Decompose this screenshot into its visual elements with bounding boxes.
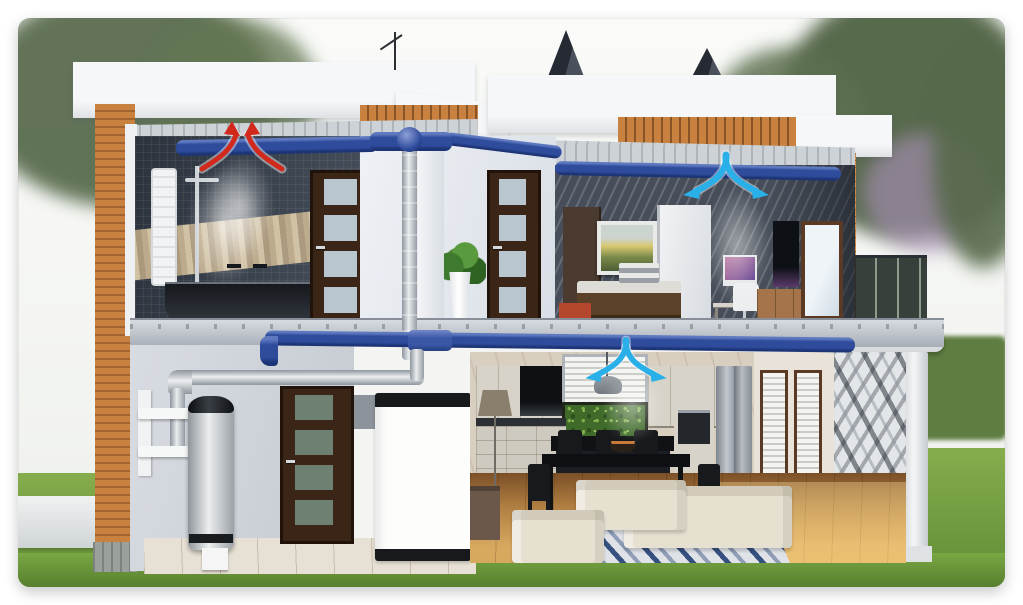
folded-towels — [619, 263, 659, 283]
wall-oven — [678, 410, 710, 444]
junction-drop-duct — [410, 349, 424, 381]
fresh-air-duct-down — [170, 388, 185, 450]
slab-rivets — [130, 324, 944, 329]
floor-lamp-pole — [494, 416, 496, 496]
door-handle-icon — [493, 246, 502, 249]
extract-air-arrows-icon — [186, 119, 298, 175]
bath-tap-2 — [253, 264, 267, 268]
kitchen-living-area — [470, 352, 906, 563]
door-glass-panes — [499, 179, 526, 323]
supply-air-arrows-kitchen-icon — [574, 334, 678, 394]
door-handle-icon — [316, 246, 325, 249]
tank-bottom-ring — [189, 534, 233, 543]
terrace-window-1 — [760, 370, 788, 490]
door-glass-panes — [324, 179, 358, 323]
fruit-bowl — [610, 444, 636, 452]
ventilation-unit — [375, 393, 471, 561]
range-hood — [520, 366, 566, 416]
cutaway-house-illustration — [18, 18, 1005, 587]
fresh-air-duct-horizontal — [176, 370, 424, 385]
riser-duct — [402, 138, 417, 360]
wall-bracket-plate — [138, 390, 151, 476]
entry-door — [280, 386, 354, 544]
garden-wall — [18, 496, 100, 548]
hall-pillar — [418, 136, 444, 334]
utility-vent-slot — [354, 395, 376, 429]
counter-left-top — [476, 418, 566, 426]
bath-tap-1 — [227, 264, 241, 268]
bed-frame — [577, 293, 681, 320]
refrigerator — [716, 366, 752, 488]
hall-door — [487, 170, 541, 332]
bedroom-window — [801, 221, 843, 320]
door-glass-panes — [295, 395, 333, 535]
unit-top-band — [375, 393, 471, 407]
terrace-window-2 — [794, 370, 822, 490]
side-table — [470, 486, 500, 540]
tank-base-block — [202, 548, 228, 570]
slab-duct-junction — [408, 330, 452, 351]
tank-top-cap — [188, 396, 234, 413]
antenna-arm — [380, 34, 403, 50]
unit-bottom-band — [375, 549, 471, 561]
tv-panel — [773, 221, 799, 287]
dining-table — [542, 454, 690, 467]
heat-pump-water-heater — [188, 396, 234, 550]
door-handle-icon — [286, 460, 295, 463]
supply-air-arrows-bedroom-icon — [671, 151, 781, 209]
towel-radiator — [151, 168, 177, 286]
floor-lamp-shade — [478, 390, 512, 416]
illustration-stage — [0, 0, 1023, 605]
armchair — [512, 510, 604, 563]
riser-tee-hub-icon — [397, 127, 422, 152]
slab-duct-elbow — [260, 336, 278, 366]
